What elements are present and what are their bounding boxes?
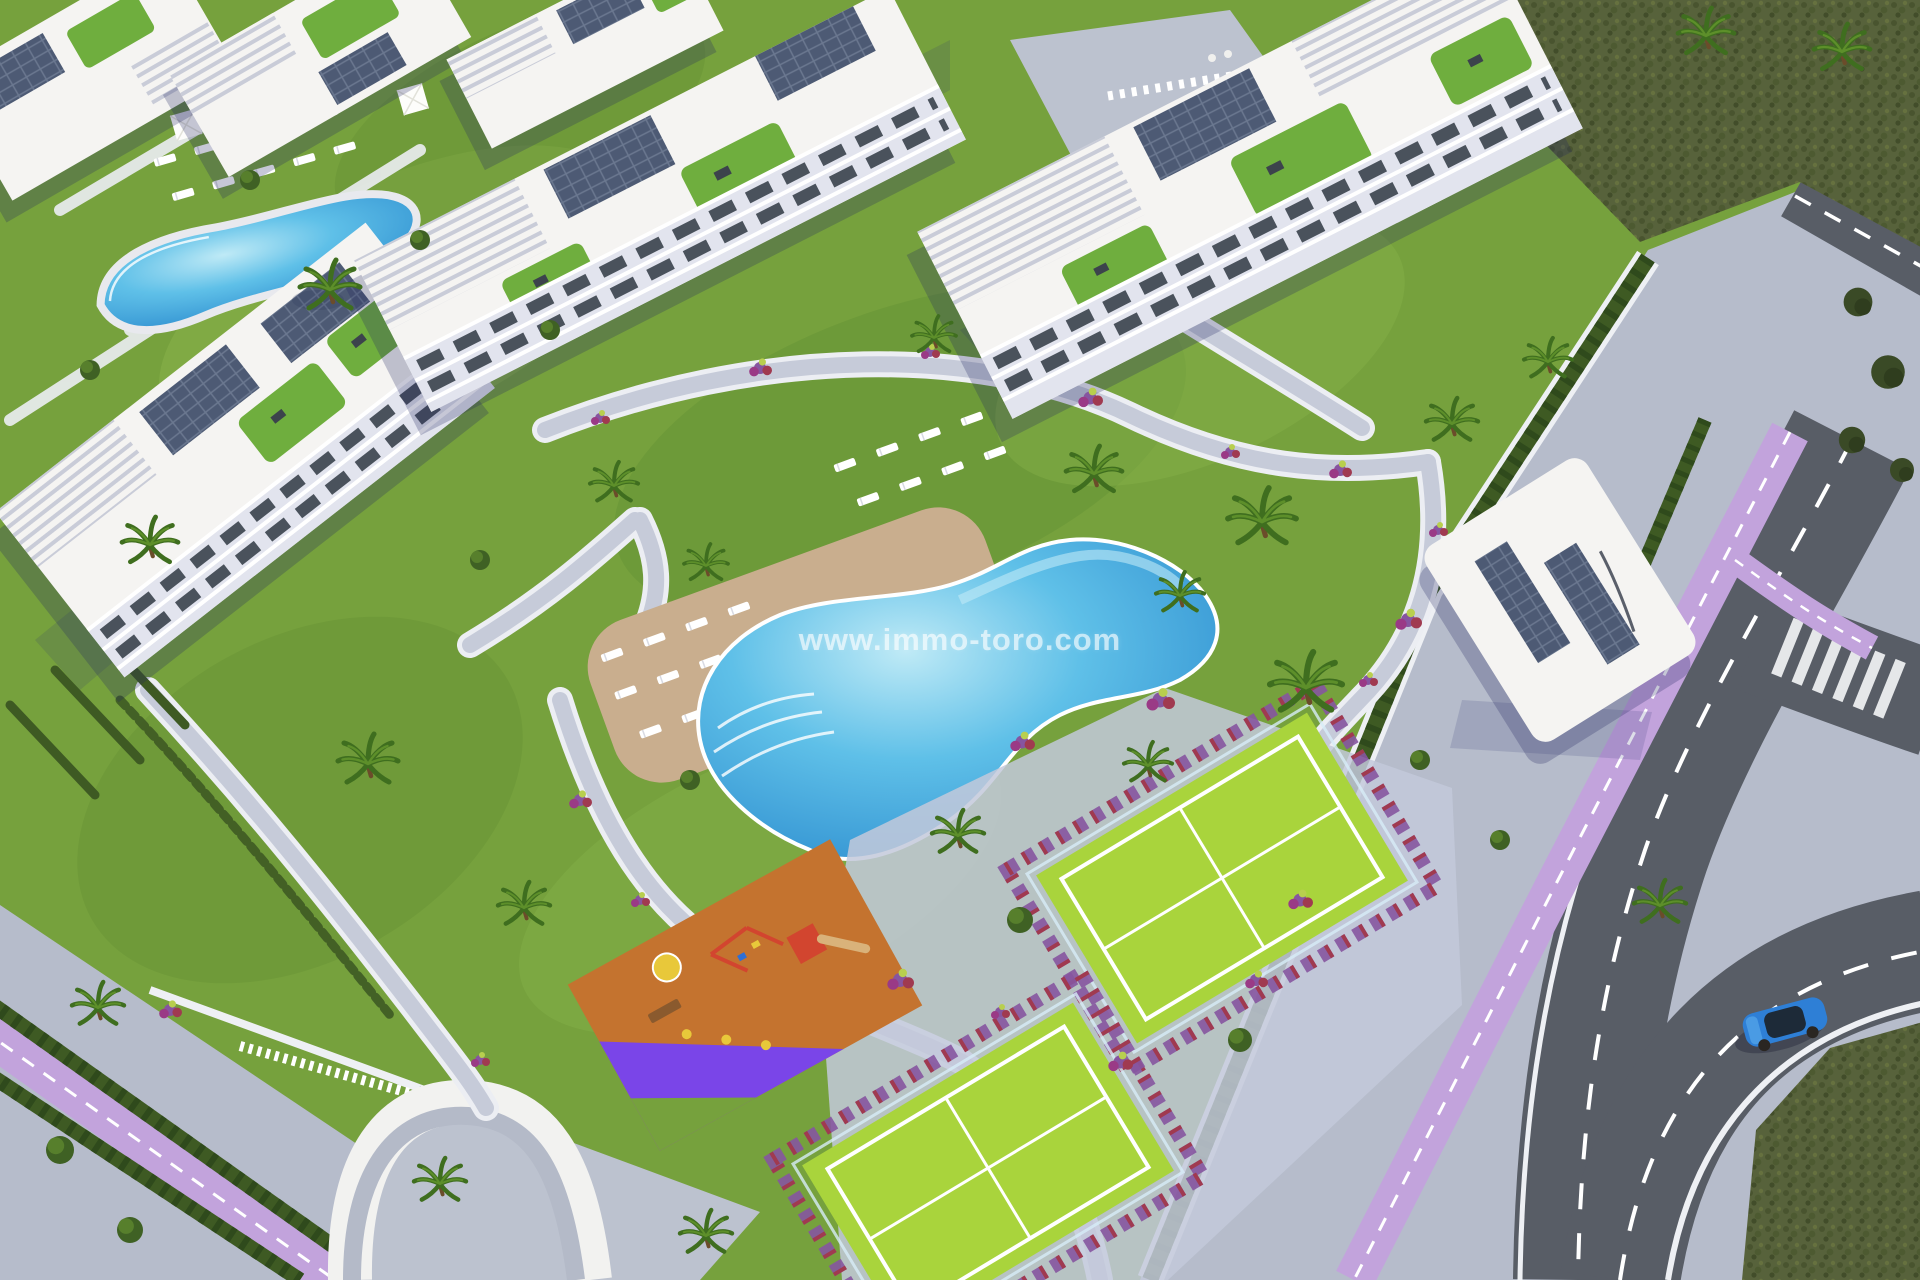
watermark-text: www.immo-toro.com	[799, 622, 1121, 658]
aerial-render: www.immo-toro.com	[0, 0, 1920, 1280]
